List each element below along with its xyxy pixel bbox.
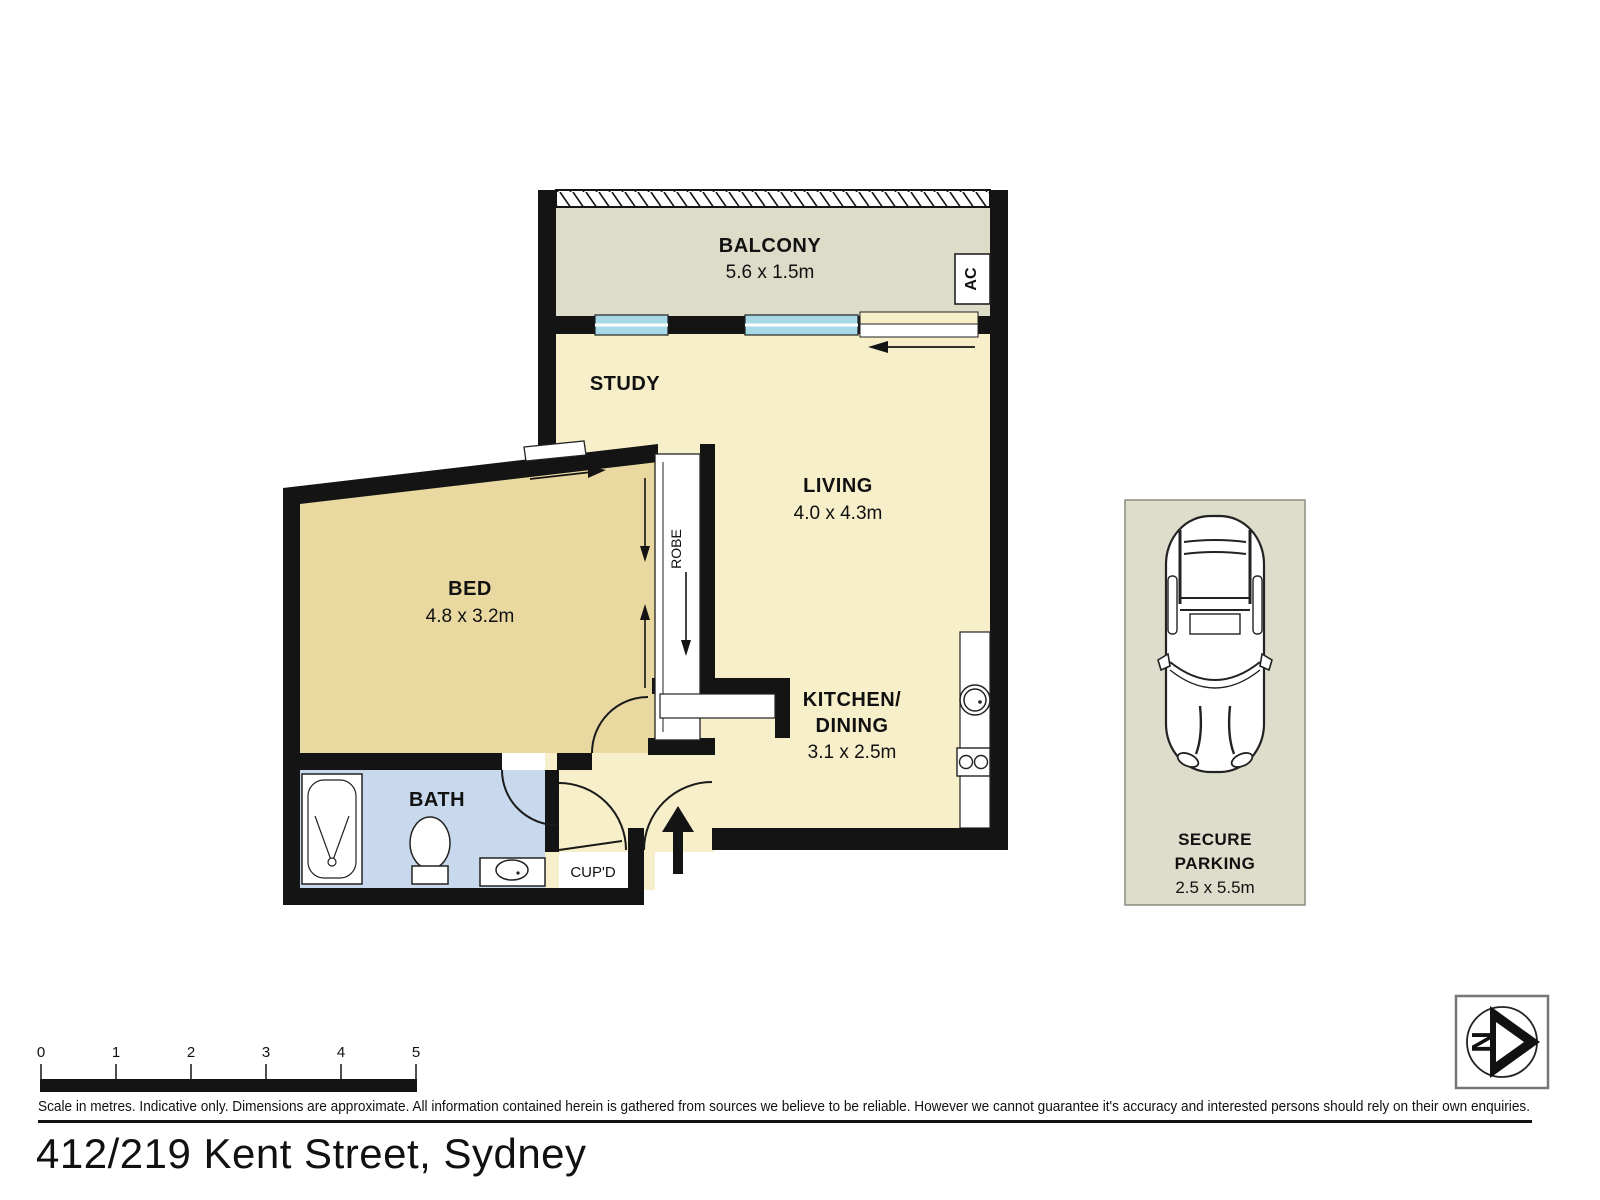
toilet-icon bbox=[410, 817, 450, 884]
car-top-view-icon bbox=[1158, 516, 1272, 772]
scale-tick-label: 3 bbox=[262, 1044, 270, 1061]
page-title: 412/219 Kent Street, Sydney bbox=[36, 1130, 587, 1177]
floorplan-page: AC BALCONY 5.6 x 1.5m STUDY LIVING 4.0 x… bbox=[0, 0, 1600, 1200]
bath-label: BATH bbox=[409, 789, 465, 811]
cooktop-icon bbox=[957, 748, 990, 776]
wall-right bbox=[990, 190, 1008, 850]
cupboard-label: CUP'D bbox=[570, 864, 616, 881]
scale-tick-label: 0 bbox=[37, 1044, 45, 1061]
ac-unit: AC bbox=[955, 254, 990, 304]
parking-label-line1: SECURE bbox=[1178, 830, 1252, 849]
wall-bottom-kitchen bbox=[712, 828, 1008, 850]
floorplan-canvas: AC BALCONY 5.6 x 1.5m STUDY LIVING 4.0 x… bbox=[0, 0, 1600, 1200]
scale-tick-label: 4 bbox=[337, 1044, 345, 1061]
bed-dims: 4.8 x 3.2m bbox=[426, 606, 515, 627]
wall-left bbox=[283, 488, 300, 905]
parking-dims: 2.5 x 5.5m bbox=[1175, 878, 1254, 897]
kitchen-counter bbox=[960, 632, 990, 828]
kitchen-bench bbox=[660, 694, 775, 718]
balcony-dims: 5.6 x 1.5m bbox=[726, 262, 815, 283]
living-dims: 4.0 x 4.3m bbox=[794, 503, 883, 524]
balcony-floor bbox=[556, 206, 990, 316]
disclaimer-text: Scale in metres. Indicative only. Dimens… bbox=[38, 1098, 1530, 1115]
scale-tick-label: 5 bbox=[412, 1044, 420, 1061]
scale-bar: 0 1 2 3 4 5 bbox=[37, 1044, 420, 1092]
kitchen-label-line2: DINING bbox=[816, 715, 889, 737]
bathtub-icon bbox=[302, 774, 362, 884]
scale-tick-label: 1 bbox=[112, 1044, 120, 1061]
bed-label: BED bbox=[448, 578, 492, 600]
vanity-basin-icon bbox=[480, 858, 545, 886]
ac-label: AC bbox=[963, 267, 980, 291]
kitchen-label-line1: KITCHEN/ bbox=[803, 689, 901, 711]
kitchen-dims: 3.1 x 2.5m bbox=[808, 742, 897, 763]
sliding-door-panel bbox=[860, 324, 978, 337]
north-label: N bbox=[1465, 1031, 1498, 1053]
balcony-label: BALCONY bbox=[719, 235, 822, 257]
wall-bed-bottom-right bbox=[557, 753, 592, 770]
wall-bottom-bath bbox=[283, 888, 644, 905]
scale-tick-label: 2 bbox=[187, 1044, 195, 1061]
footer-divider bbox=[38, 1120, 1532, 1123]
wall-bath-right bbox=[545, 770, 559, 852]
scale-bar-rule bbox=[40, 1079, 417, 1092]
robe-label: ROBE bbox=[668, 529, 684, 569]
parking-space: SECURE PARKING 2.5 x 5.5m bbox=[1125, 500, 1305, 905]
sliding-door-panel bbox=[860, 312, 978, 324]
wall-robe-right bbox=[700, 444, 715, 694]
wall-kitchen-stub bbox=[775, 694, 790, 738]
balcony-hatched-edge bbox=[556, 190, 990, 207]
north-arrow-icon: N bbox=[1456, 996, 1548, 1088]
parking-label-line2: PARKING bbox=[1175, 854, 1256, 873]
study-label: STUDY bbox=[590, 373, 660, 395]
living-label: LIVING bbox=[803, 475, 873, 497]
wall-balcony-left bbox=[538, 190, 556, 463]
wall-bed-bottom-left bbox=[300, 753, 502, 770]
scale-ticks bbox=[41, 1064, 416, 1079]
footer: Scale in metres. Indicative only. Dimens… bbox=[36, 1098, 1532, 1177]
